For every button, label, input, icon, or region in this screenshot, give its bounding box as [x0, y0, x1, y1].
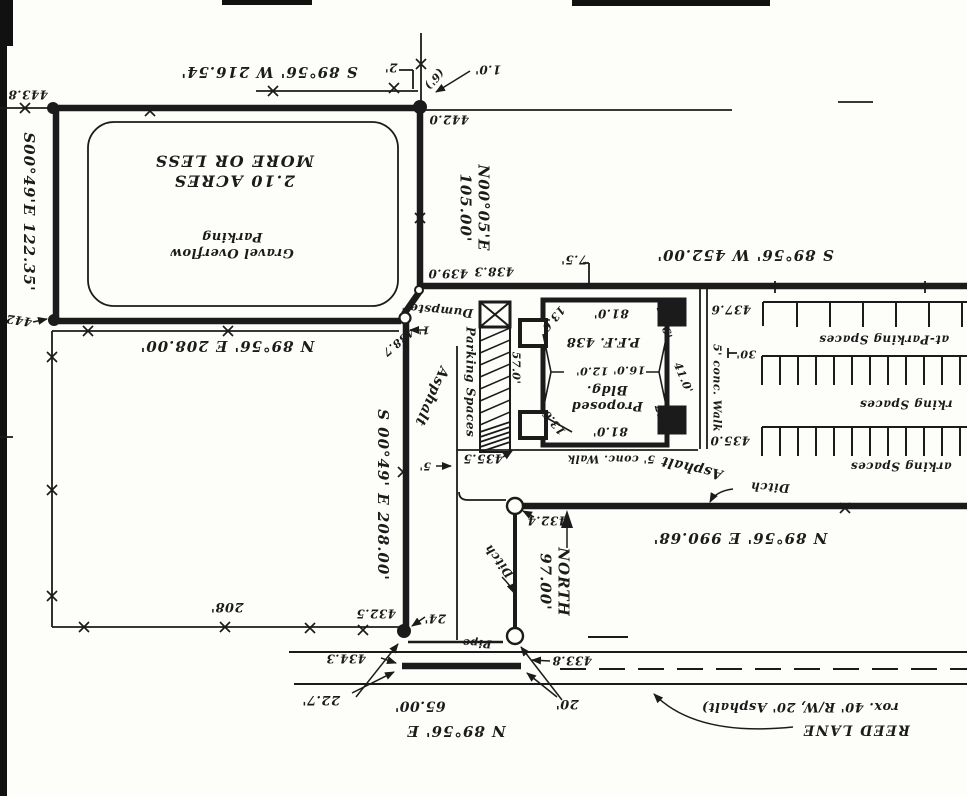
dim-5ft: 5': [419, 459, 431, 472]
elev-438-7: 438.7: [380, 325, 417, 359]
bearing-s8956w-452: S 89°56' W 452.00': [656, 246, 833, 264]
asphalt-drive-label: Asphalt: [410, 364, 451, 429]
walk-south-label: 5' conc. Walk: [567, 452, 655, 465]
bearing-top-boundary: S 89°56' W 216.54': [180, 63, 357, 81]
dim-65ft: 65.00': [394, 696, 445, 713]
dim-13-6-bottom: 13.6': [537, 404, 568, 438]
elev-437-6: 437.6: [711, 302, 751, 317]
dim-208: 208': [210, 598, 243, 614]
dim-16-0: 16.0': [613, 363, 646, 376]
elev-442: 442: [5, 311, 33, 329]
dim-21-6-bottom: 21.6': [651, 403, 672, 438]
dim-81-0-bottom: 81.0': [592, 424, 627, 439]
bearing-road-frontage: N 89°56' E: [406, 722, 505, 740]
parcel-use-note: Gravel Overflow Parking: [170, 228, 294, 260]
bearing-ditch-north: NORTH 97.00': [536, 547, 573, 616]
road-note: rox. 40' R/W, 20' Asphalt): [701, 698, 898, 714]
parcel-area-note: 2.10 ACRES MORE OR LESS: [154, 151, 314, 190]
dim-7-5ft: 7.5': [561, 252, 588, 267]
survey-plat-sheet: S 89°56' W 216.54'443.8S00°49'E 122.35'2…: [0, 0, 967, 796]
elev-435-5: 435.5: [463, 451, 503, 466]
asphalt-road-label: Asphalt: [659, 452, 724, 483]
parking-row2-label: rking Spaces: [859, 397, 952, 412]
elev-438-3: 438.3: [474, 264, 514, 279]
walk-east-label: 5' conc. Walk: [710, 344, 723, 432]
parking-row3-label: arking Spaces: [850, 459, 951, 474]
elev-443-8: 443.8: [8, 87, 48, 102]
bearing-ne-boundary: N00°05'E 105.00': [456, 165, 493, 252]
dim-1-0ft: 1.0': [475, 62, 502, 77]
dim-13-6-top: 13.6': [536, 303, 567, 337]
elev-439-0: 439.0: [428, 266, 468, 281]
bearing-west-boundary: S00°49'E 122.35': [20, 132, 38, 291]
bearing-s0049e-208: S 00°49' E 208.00': [374, 409, 392, 581]
bldg-finished-floor: P.F.F. 438: [566, 333, 640, 349]
dim-81-0-top: 81.0': [593, 306, 628, 321]
pipe-label: Pipe: [462, 636, 492, 651]
bearing-n8956e-208: N 89°56' E 208.00': [140, 337, 315, 355]
dim-30ft: 30': [736, 347, 756, 360]
dim-24ft: 24': [424, 611, 446, 626]
elev-442-0: 442.0: [429, 112, 469, 127]
dim-21-6-top: 21.6': [653, 305, 674, 340]
elev-434-3: 434.3: [326, 651, 366, 666]
bearing-road-east: N 89°56' E 990.68': [653, 529, 828, 547]
plan-annotations: S 89°56' W 216.54'443.8S00°49'E 122.35'2…: [0, 0, 967, 796]
parking-row1-label: at-Parking Spaces: [819, 332, 949, 347]
ditch-west-label: Ditch: [481, 541, 517, 581]
dumpster-label: Dumpster: [402, 300, 473, 321]
elev-432-5: 432.5: [356, 606, 396, 621]
dim-1ft: 1': [418, 323, 430, 336]
dim-12-0: 12.0': [576, 364, 609, 377]
elev-432-4: 432.4: [527, 513, 567, 528]
bldg-name: Proposed Bldg.: [571, 381, 643, 413]
dim-41-0: 41.0': [670, 360, 695, 395]
dim-57-0: 57.0': [509, 352, 522, 385]
elev-433-8: 433.8: [552, 653, 592, 668]
dim-6ft-note: (6'): [421, 66, 446, 92]
parking-strip-label: Parking Spaces: [463, 327, 478, 438]
dim-2ft-fence-offset: 2': [384, 60, 397, 75]
dim-22-7ft: 22.7': [302, 691, 340, 707]
dim-20ft: 20': [555, 695, 579, 711]
elev-435-0: 435.0: [710, 433, 750, 448]
road-name: REED LANE: [802, 720, 910, 737]
ditch-east-label: Ditch: [750, 479, 790, 496]
